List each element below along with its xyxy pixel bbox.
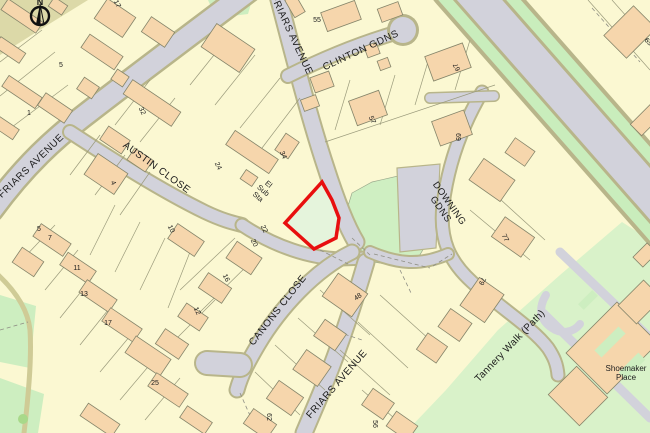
- house-number: 62: [265, 413, 272, 421]
- street-map: FRIARS AVENUEAUSTIN CLOSEFRIARS AVENUECL…: [0, 0, 650, 433]
- house-number: 7: [48, 235, 52, 242]
- house-number: 5: [59, 62, 63, 69]
- house-number: 56: [371, 420, 378, 428]
- house-number: 11: [73, 265, 80, 272]
- house-number: 25: [151, 380, 159, 387]
- tree: [18, 414, 28, 424]
- compass-n-label: N: [37, 0, 44, 7]
- house-number: 5: [37, 226, 41, 233]
- house-number: 17: [104, 320, 112, 327]
- road-canons-stub: [207, 363, 240, 365]
- house-number: 1: [27, 110, 31, 117]
- house-number: 13: [80, 291, 88, 298]
- house-number: 55: [313, 17, 321, 24]
- house-number: 69: [454, 133, 461, 141]
- map-canvas[interactable]: FRIARS AVENUEAUSTIN CLOSEFRIARS AVENUECL…: [0, 0, 650, 433]
